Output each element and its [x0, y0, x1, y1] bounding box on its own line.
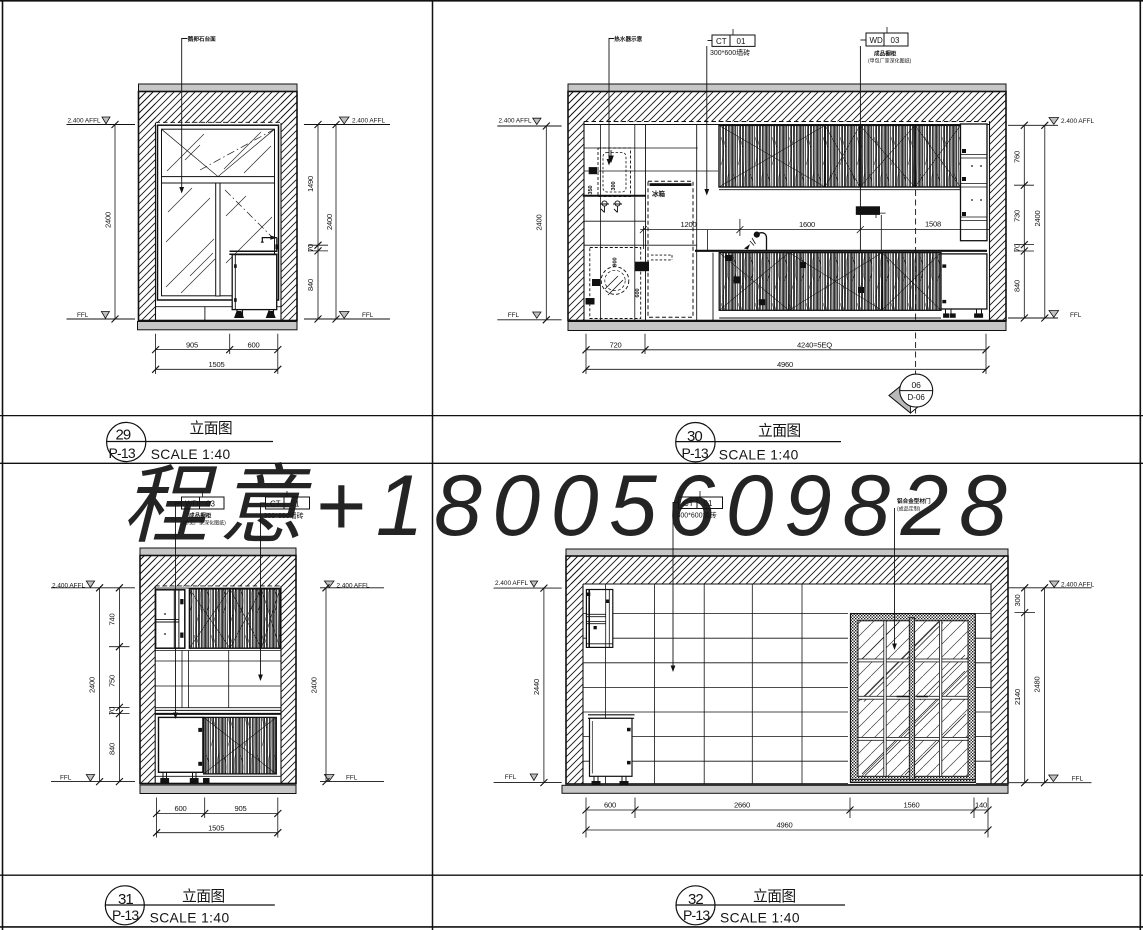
- svg-text:2.400 AFFL: 2.400 AFFL: [495, 580, 528, 587]
- svg-text:31: 31: [118, 891, 133, 908]
- svg-text:600: 600: [174, 804, 186, 813]
- svg-text:鹅卵石台面: 鹅卵石台面: [188, 35, 216, 43]
- svg-text:350: 350: [588, 185, 594, 194]
- svg-text:70: 70: [108, 707, 117, 715]
- svg-text:4960: 4960: [776, 821, 792, 830]
- svg-text:SCALE 1:40: SCALE 1:40: [150, 911, 230, 926]
- svg-text:600: 600: [247, 340, 259, 349]
- svg-text:2400: 2400: [535, 214, 544, 230]
- svg-text:4240=5EQ: 4240=5EQ: [797, 341, 832, 350]
- svg-text:2400: 2400: [310, 677, 319, 693]
- svg-text:1508: 1508: [925, 220, 941, 229]
- svg-text:FFL: FFL: [1070, 312, 1082, 319]
- svg-text:1200: 1200: [680, 220, 696, 229]
- svg-text:立面图: 立面图: [190, 420, 233, 437]
- svg-text:01: 01: [737, 37, 746, 46]
- svg-text:905: 905: [186, 340, 198, 349]
- svg-text:140: 140: [975, 801, 987, 810]
- svg-text:06: 06: [911, 380, 921, 390]
- svg-text:2.400 AFFL: 2.400 AFFL: [352, 118, 385, 125]
- svg-text:2.400 AFFL: 2.400 AFFL: [68, 118, 101, 125]
- svg-text:29: 29: [116, 426, 131, 443]
- svg-text:2660: 2660: [734, 801, 750, 810]
- svg-text:2480: 2480: [1033, 676, 1042, 692]
- svg-text:FFL: FFL: [362, 312, 374, 319]
- svg-text:1560: 1560: [903, 801, 919, 810]
- svg-text:740: 740: [108, 613, 117, 625]
- svg-text:SCALE 1:40: SCALE 1:40: [720, 911, 800, 926]
- svg-text:840: 840: [1013, 280, 1022, 292]
- svg-text:900: 900: [613, 257, 619, 266]
- svg-text:冰箱: 冰箱: [652, 189, 666, 198]
- svg-text:720: 720: [609, 341, 621, 350]
- svg-text:2400: 2400: [325, 214, 334, 230]
- svg-text:立面图: 立面图: [182, 888, 225, 905]
- svg-text:CT: CT: [716, 37, 727, 46]
- svg-text:760: 760: [1013, 151, 1022, 163]
- svg-text:300*600墙砖: 300*600墙砖: [710, 48, 750, 57]
- svg-text:905: 905: [234, 804, 246, 813]
- svg-text:P-13: P-13: [112, 907, 139, 923]
- svg-text:730: 730: [1013, 210, 1022, 222]
- svg-text:FFL: FFL: [1072, 776, 1084, 783]
- svg-text:FFL: FFL: [77, 312, 89, 319]
- svg-text:立面图: 立面图: [753, 888, 796, 905]
- svg-text:FFL: FFL: [505, 774, 517, 781]
- svg-text:成品橱柜: 成品橱柜: [874, 50, 897, 58]
- svg-text:4960: 4960: [777, 360, 793, 369]
- svg-text:840: 840: [306, 279, 315, 291]
- svg-text:FFL: FFL: [346, 775, 358, 782]
- svg-text:WD: WD: [870, 36, 884, 45]
- svg-text:32: 32: [688, 891, 703, 908]
- svg-text:1490: 1490: [306, 176, 315, 192]
- svg-text:1505: 1505: [208, 823, 224, 832]
- svg-text:300: 300: [611, 181, 617, 190]
- svg-text:2140: 2140: [1013, 689, 1022, 705]
- svg-text:600: 600: [604, 801, 616, 810]
- svg-text:程意+18005609828: 程意+18005609828: [122, 458, 1017, 554]
- svg-text:750: 750: [108, 675, 117, 687]
- svg-text:70: 70: [1013, 244, 1022, 252]
- svg-text:2400: 2400: [104, 212, 113, 228]
- svg-text:2440: 2440: [532, 679, 541, 695]
- svg-text:D-06: D-06: [908, 393, 926, 402]
- svg-text:600: 600: [635, 288, 641, 297]
- svg-text:70: 70: [306, 244, 315, 252]
- svg-text:2400: 2400: [1033, 210, 1042, 226]
- svg-text:2.400 AFFL: 2.400 AFFL: [499, 117, 532, 124]
- svg-text:立面图: 立面图: [758, 423, 801, 440]
- svg-text:1600: 1600: [799, 220, 815, 229]
- svg-text:P-13: P-13: [683, 907, 710, 923]
- svg-text:30: 30: [687, 428, 702, 445]
- svg-text:(甲包厂家深化图纸): (甲包厂家深化图纸): [868, 58, 912, 65]
- svg-text:840: 840: [108, 743, 117, 755]
- svg-text:FFL: FFL: [60, 775, 72, 782]
- svg-text:2400: 2400: [88, 677, 97, 693]
- svg-text:2.400 AFFL: 2.400 AFFL: [1061, 118, 1094, 125]
- svg-text:1505: 1505: [208, 360, 224, 369]
- svg-text:FFL: FFL: [508, 312, 520, 319]
- svg-text:03: 03: [891, 36, 900, 45]
- svg-text:300: 300: [1013, 594, 1022, 606]
- svg-text:热水器示意: 热水器示意: [614, 35, 642, 43]
